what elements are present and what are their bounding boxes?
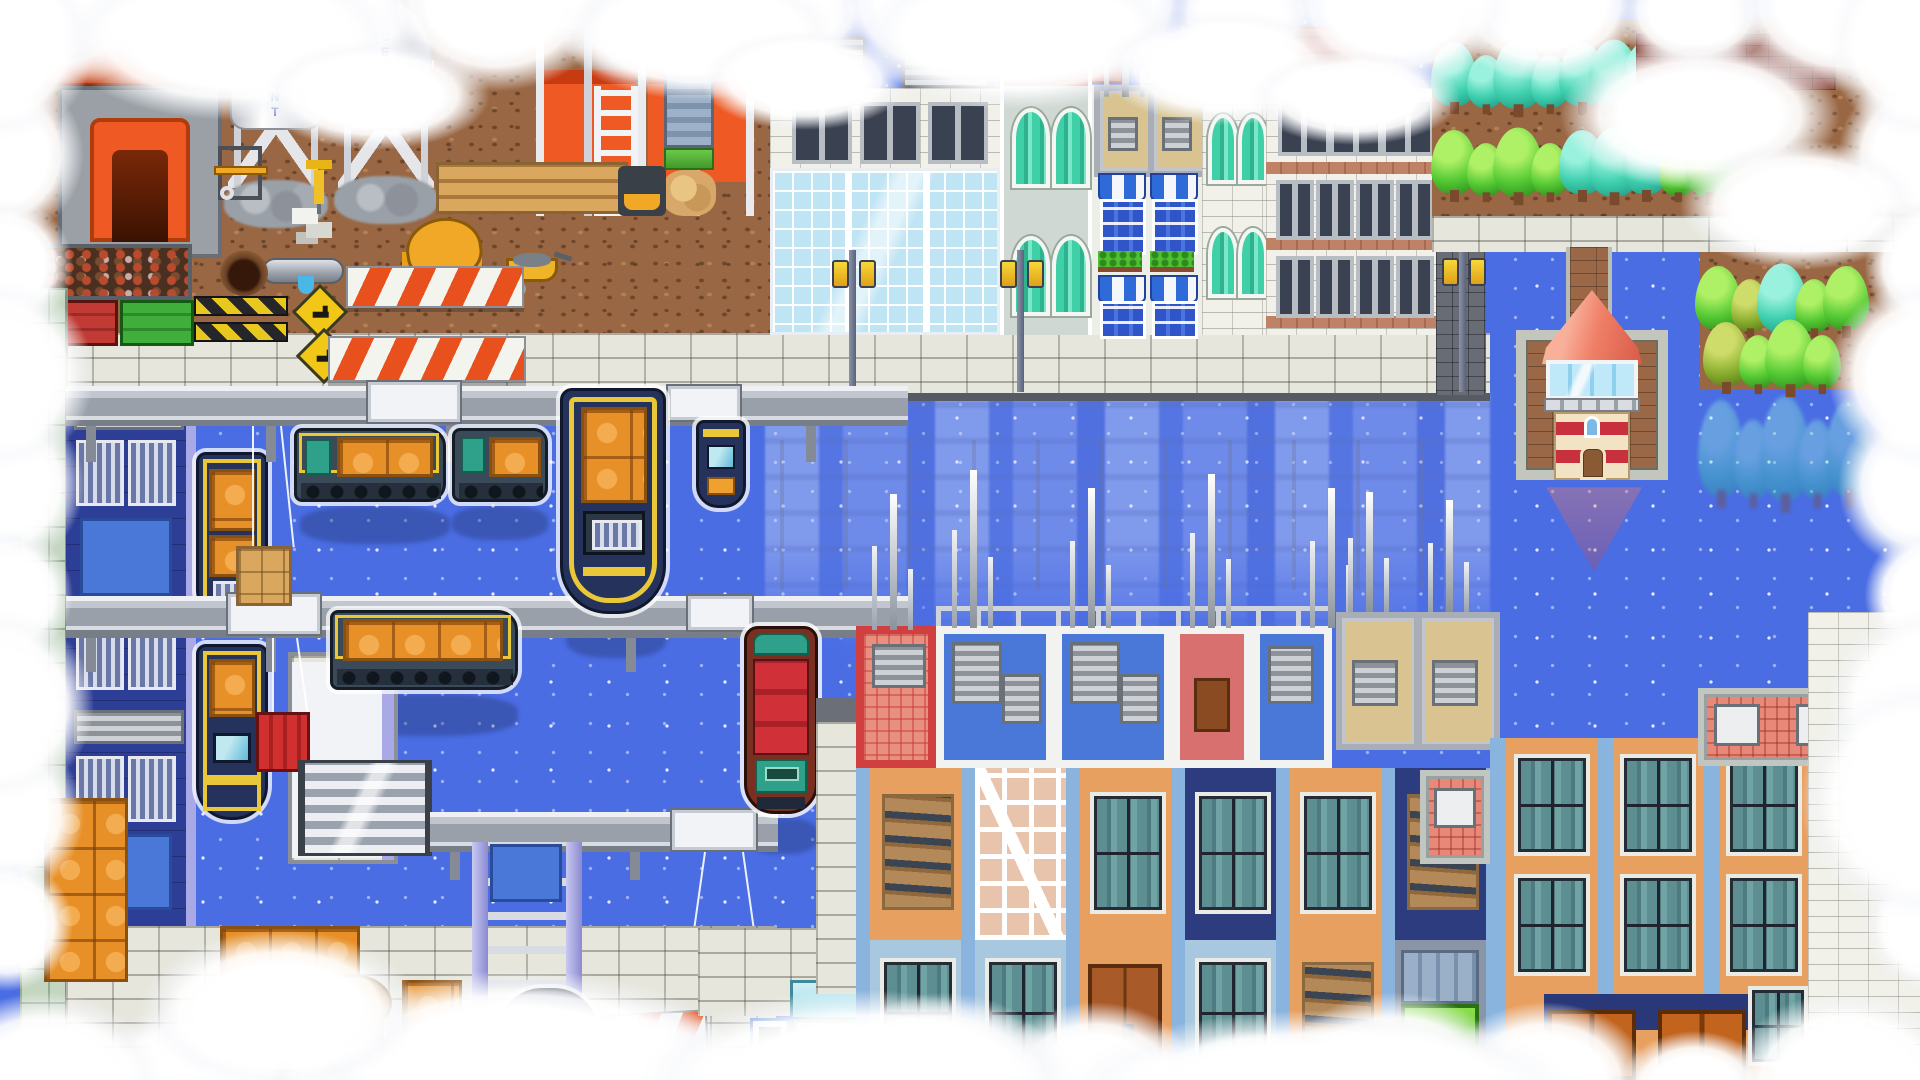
ac-unit xyxy=(1714,704,1760,746)
apartment-panel xyxy=(1276,768,1381,940)
vertical-barge xyxy=(560,388,666,614)
barge-cargo xyxy=(209,469,255,531)
blue-window xyxy=(1100,199,1146,255)
cabin-window xyxy=(592,520,642,550)
apartment-facade-row-1 xyxy=(856,768,1490,940)
ship-cabin xyxy=(755,759,807,793)
arched-window xyxy=(1052,236,1090,316)
crane-cable xyxy=(252,426,254,548)
roof-ac xyxy=(1120,674,1160,724)
tower-blue-panel xyxy=(490,844,562,902)
long-barge xyxy=(330,610,518,690)
apartment-window xyxy=(1518,758,1586,852)
apartment-window xyxy=(1094,796,1162,910)
digger-glyph xyxy=(313,306,329,320)
rooftop-sections xyxy=(936,626,1332,768)
arched-window xyxy=(1208,228,1238,298)
silver-container-stack xyxy=(298,760,432,856)
lighthouse-roof xyxy=(1542,290,1642,364)
jackhammer xyxy=(306,160,332,214)
sand-pile xyxy=(662,170,716,216)
antenna-mast-cluster xyxy=(1062,488,1122,628)
boarded-window xyxy=(882,794,954,910)
tall-window xyxy=(1316,256,1354,318)
apartment-window xyxy=(1304,796,1372,910)
lighthouse-body xyxy=(1554,412,1630,480)
hull-fenders xyxy=(301,483,441,499)
roof-door-brown xyxy=(1194,678,1230,732)
roof-ac xyxy=(1268,646,1314,704)
tall-window xyxy=(1276,256,1314,318)
awning xyxy=(1150,173,1198,201)
gantry-rail-1 xyxy=(66,386,908,426)
mullion xyxy=(923,171,930,332)
rail-trolley xyxy=(366,380,462,424)
canal-wall-column xyxy=(816,698,858,994)
apartment-window xyxy=(1624,878,1692,972)
barge-shadow xyxy=(300,506,450,544)
orange-double-doors xyxy=(1658,1010,1746,1080)
lamp-lantern xyxy=(832,260,849,288)
tall-window xyxy=(1356,256,1394,318)
tug-deck xyxy=(707,477,735,495)
dirt-pit xyxy=(220,250,268,296)
teal-container xyxy=(305,439,331,475)
hull-fenders xyxy=(337,669,513,685)
lamp-pole xyxy=(1459,248,1466,392)
crane-arm xyxy=(214,166,268,175)
rooftop-section xyxy=(936,626,1054,768)
flower-box xyxy=(1150,251,1194,272)
arched-window xyxy=(1012,108,1050,188)
lighthouse-gallery xyxy=(1546,360,1638,400)
street-lamp xyxy=(998,250,1042,392)
lamp-lantern xyxy=(859,260,876,288)
office-window xyxy=(928,102,988,164)
hull-fenders xyxy=(459,483,543,499)
lamp-lantern xyxy=(1469,258,1486,286)
hazard-barrier xyxy=(194,296,288,316)
rail-trolley xyxy=(686,594,754,632)
awning xyxy=(1098,173,1146,201)
green-dumpster xyxy=(120,300,194,346)
cabin-window xyxy=(765,767,799,781)
mini-crane xyxy=(214,146,268,212)
lighthouse-door xyxy=(1580,446,1606,480)
warehouse-roof-vent xyxy=(74,710,184,744)
box-vent xyxy=(1432,660,1478,706)
rail-trolley xyxy=(670,808,758,852)
lamp-pole xyxy=(1017,250,1024,392)
barge-cargo xyxy=(489,437,541,477)
red-teal-cargo-ship xyxy=(744,626,818,814)
arched-window xyxy=(1052,108,1090,188)
mini-excavator xyxy=(618,166,666,216)
rail-trolley xyxy=(666,384,742,422)
roof-ac xyxy=(952,642,1002,704)
ship-containers xyxy=(753,659,809,755)
roof-ac xyxy=(872,644,926,688)
arched-window xyxy=(1238,228,1268,298)
tree xyxy=(1803,335,1841,387)
garage-shutter xyxy=(1401,950,1479,1004)
barge-cargo xyxy=(581,407,647,503)
excavator-bucket xyxy=(624,194,660,210)
gravel-pile xyxy=(334,176,438,224)
orange-crate-stack xyxy=(44,798,128,982)
apartment-window xyxy=(1752,990,1804,1062)
tug-windshield xyxy=(707,445,735,469)
apartment-panel xyxy=(1066,768,1171,940)
antenna-mast-cluster xyxy=(1340,492,1396,612)
factory-furnace-mouth xyxy=(112,150,168,242)
orange-white-barrier xyxy=(328,336,526,382)
cloud-patch xyxy=(140,930,420,1080)
rooftop-red-section xyxy=(856,626,936,768)
lamp-lantern xyxy=(1442,258,1459,286)
lighthouse-window xyxy=(1584,416,1600,438)
steam-cloud xyxy=(1250,50,1460,145)
tall-window xyxy=(1396,256,1434,318)
rooftop-section xyxy=(1252,626,1332,768)
pallets xyxy=(436,162,628,214)
awning xyxy=(1150,275,1198,303)
barge-cargo xyxy=(337,437,433,477)
barge-cabin xyxy=(583,511,645,555)
ship-stern xyxy=(757,797,805,809)
fire-escape-panel xyxy=(961,768,1066,940)
awning xyxy=(1098,275,1146,303)
rooftop-access-section xyxy=(1172,626,1252,768)
box-vent xyxy=(1352,660,1398,706)
steam-cloud xyxy=(1680,140,1920,270)
tug-windshield xyxy=(213,733,251,763)
tall-window xyxy=(1396,180,1434,240)
brick-band xyxy=(1266,162,1436,174)
tug-bow-stripe xyxy=(207,775,257,785)
apartment-window xyxy=(1730,758,1798,852)
bow-stripe xyxy=(583,567,645,576)
apartment-window xyxy=(1199,796,1267,910)
park-tree-row xyxy=(1710,316,1920,386)
antenna-box xyxy=(1336,612,1420,750)
ac-unit xyxy=(1434,788,1476,828)
blue-window xyxy=(1152,301,1198,339)
street-lamp xyxy=(830,250,874,392)
roof-ac xyxy=(1002,674,1042,724)
lamp-lantern xyxy=(1027,260,1044,288)
blue-window xyxy=(1152,199,1198,255)
apartment-window xyxy=(1730,878,1798,972)
apartment-panel xyxy=(1171,768,1276,940)
apartment-window xyxy=(1518,878,1586,972)
lighthouse-deck-band xyxy=(1544,398,1640,412)
horizontal-barge xyxy=(294,428,446,502)
antenna-mast-cluster xyxy=(1182,474,1242,628)
steam-cloud xyxy=(700,30,910,130)
barrow-load xyxy=(513,253,551,267)
tall-window xyxy=(1276,180,1314,240)
lighthouse-reflection xyxy=(1546,480,1642,572)
glass-curtain-wall xyxy=(770,168,1000,335)
roof-ac xyxy=(1070,642,1120,704)
tall-window xyxy=(1356,180,1394,240)
tree-reflection xyxy=(1826,400,1872,496)
antenna-box xyxy=(1416,612,1500,750)
crane-cable xyxy=(272,638,274,714)
pipe-segment xyxy=(262,252,344,294)
rooftop-section xyxy=(1054,626,1172,768)
orange-white-barrier xyxy=(346,266,524,308)
red-brick-ac-section xyxy=(1420,770,1490,864)
hazard-barrier xyxy=(194,322,288,342)
horizontal-barge xyxy=(452,428,548,502)
lighthouse xyxy=(1540,290,1644,480)
green-tarp xyxy=(664,148,714,170)
cloud-patch xyxy=(640,990,1080,1080)
crane-hook xyxy=(220,186,234,200)
tree-reflections xyxy=(1705,376,1920,496)
apartment-window xyxy=(1624,758,1692,852)
tug-stripe xyxy=(703,429,739,437)
apartment-panel xyxy=(856,768,961,940)
ship-bow-cap xyxy=(753,633,809,655)
cloud-patch xyxy=(1060,1010,1580,1080)
blue-panel xyxy=(80,518,172,596)
cloud-patch xyxy=(260,40,490,150)
barge-cargo xyxy=(343,619,503,661)
hanging-crate xyxy=(236,546,292,606)
tugboat xyxy=(696,420,746,508)
antenna-mast-cluster xyxy=(1420,500,1476,612)
lamp-pole xyxy=(849,250,856,392)
warehouse-window xyxy=(128,756,176,822)
harbor-city-map: CEMENT CEMENT xyxy=(0,0,1920,1080)
barge-shadow xyxy=(452,506,548,540)
cloud-patch xyxy=(1800,680,1920,920)
street-lamp xyxy=(1440,248,1484,392)
antenna-mast-cluster xyxy=(864,494,924,630)
lamp-lantern xyxy=(1000,260,1017,288)
teal-container xyxy=(461,437,485,473)
blue-window xyxy=(1100,301,1146,339)
flower-box xyxy=(1098,251,1142,272)
tall-window xyxy=(1316,180,1354,240)
antenna-mast-cluster xyxy=(944,470,1004,628)
